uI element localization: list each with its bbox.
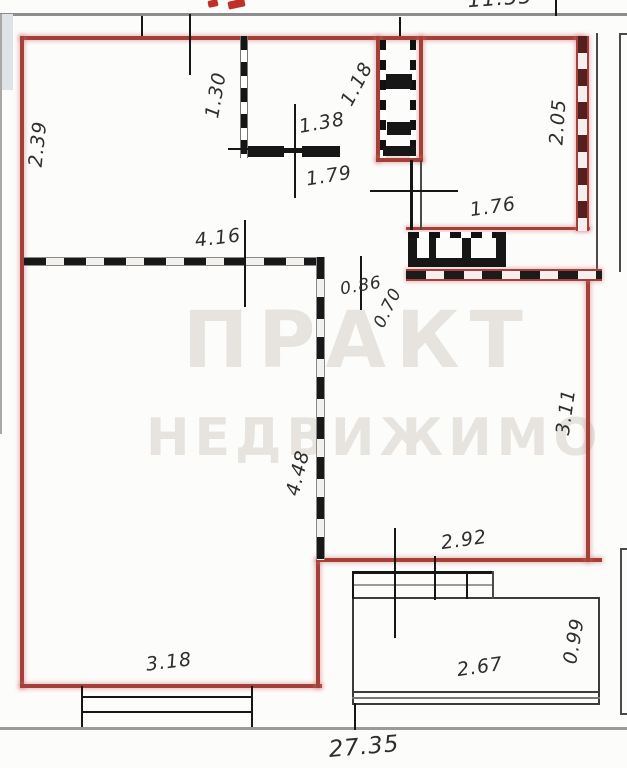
duct-wall-line (410, 160, 413, 230)
balcony-glazing-line (352, 697, 600, 699)
vent-shaft-divider (462, 238, 471, 258)
wall-right-room-right (586, 279, 590, 562)
dimension-label-2-39: 2.39 (25, 120, 52, 168)
vent-shaft-divider (429, 238, 436, 258)
neighbor-balcony-stub (620, 713, 627, 715)
dimension-label-11-55-clipped: 11.55 (467, 0, 534, 12)
dimension-label-1-38: 1.38 (297, 108, 346, 138)
neighbor-balcony-line (620, 548, 622, 715)
neighbor-wall-stub (619, 33, 627, 35)
closet-wall-thin (284, 150, 302, 153)
dimension-line (370, 190, 458, 192)
watermark-line1: ПРАКТ (183, 296, 533, 386)
shaft-wall-bottom (376, 158, 423, 162)
dimension-label-1-18: 1.18 (336, 58, 377, 109)
dimension-tick (141, 16, 143, 36)
balcony-outline-bottom (352, 703, 600, 705)
window-jamb (492, 571, 494, 599)
wall-bottom-right-room (316, 558, 602, 562)
clipped-red-dimension-glyphs (207, 0, 218, 8)
window-glazing-line (81, 696, 253, 698)
window-sill-line (352, 571, 493, 574)
window-jamb (81, 686, 83, 727)
dimension-tick (354, 703, 356, 730)
floor-plan-page: { "plan": { "type": "apartment-floor-pla… (0, 0, 627, 768)
dimension-tick (244, 220, 246, 307)
shaft-wall-right (419, 36, 423, 162)
dimension-tick (555, 0, 557, 16)
window-glazing-line (81, 711, 253, 713)
left-edge-shading (2, 14, 13, 90)
dimension-line (228, 148, 314, 150)
neighbor-wall-line (596, 33, 598, 272)
watermark-line2: НЕДВИЖИМО (146, 408, 603, 468)
neighbor-wall-line (619, 33, 621, 272)
strip-wall-top (406, 227, 590, 230)
dimension-tick (294, 104, 296, 198)
dimension-tick (189, 14, 191, 75)
duct-wall-line (420, 160, 422, 230)
vent-shaft-block (383, 146, 416, 156)
dimension-label-2-92: 2.92 (440, 526, 489, 554)
dimension-label-1-30: 1.30 (201, 70, 231, 119)
wall-bottom-left-room (20, 684, 322, 688)
dimension-tick (399, 17, 401, 36)
window-sill-line-gray (352, 584, 493, 586)
dimension-tick (434, 556, 436, 600)
wall-left (20, 36, 24, 688)
vent-shaft-block (386, 74, 412, 89)
balcony-outline-right (598, 597, 600, 705)
vent-shaft-hatch-h (408, 232, 504, 238)
vent-shaft-divider (496, 232, 506, 267)
balcony-outline-top (352, 597, 600, 599)
dimension-label-3-18: 3.18 (145, 648, 194, 675)
window-jamb (352, 571, 354, 599)
clipped-red-dimension-glyphs (227, 0, 245, 10)
vent-shaft-hatch (380, 40, 386, 158)
balcony-glazing-line (352, 691, 600, 693)
closet-wall-left (240, 36, 248, 158)
wall-top (20, 36, 583, 40)
vent-shaft-divider (408, 238, 417, 258)
wall-right-dashed (576, 36, 589, 231)
dimension-tick (394, 528, 396, 638)
vent-shaft-block (387, 122, 411, 135)
partition-horizontal (24, 257, 320, 266)
dimension-label-1-79: 1.79 (304, 162, 353, 191)
neighbor-balcony-stub (620, 548, 627, 550)
dimension-label-27-35: 27.35 (328, 731, 401, 763)
vent-shaft-bottom-bar (408, 258, 502, 267)
vent-shaft-hatch (410, 40, 416, 158)
wall-mid-vertical (316, 558, 320, 688)
balcony-outline-left (352, 597, 354, 705)
dimension-label-2-67: 2.67 (456, 653, 505, 681)
window-jamb (251, 686, 253, 727)
dimension-label-4-16: 4.16 (194, 224, 243, 251)
window-jamb (466, 571, 468, 599)
dimension-label-2-05: 2.05 (545, 98, 570, 146)
top-slab-line (0, 13, 627, 16)
wall-bottom-dashed (406, 269, 602, 281)
partition-vertical (316, 257, 325, 560)
bottom-slab-line (0, 727, 627, 730)
dimension-label-1-76: 1.76 (469, 193, 518, 221)
dimension-label-0-99: 0.99 (559, 616, 589, 665)
